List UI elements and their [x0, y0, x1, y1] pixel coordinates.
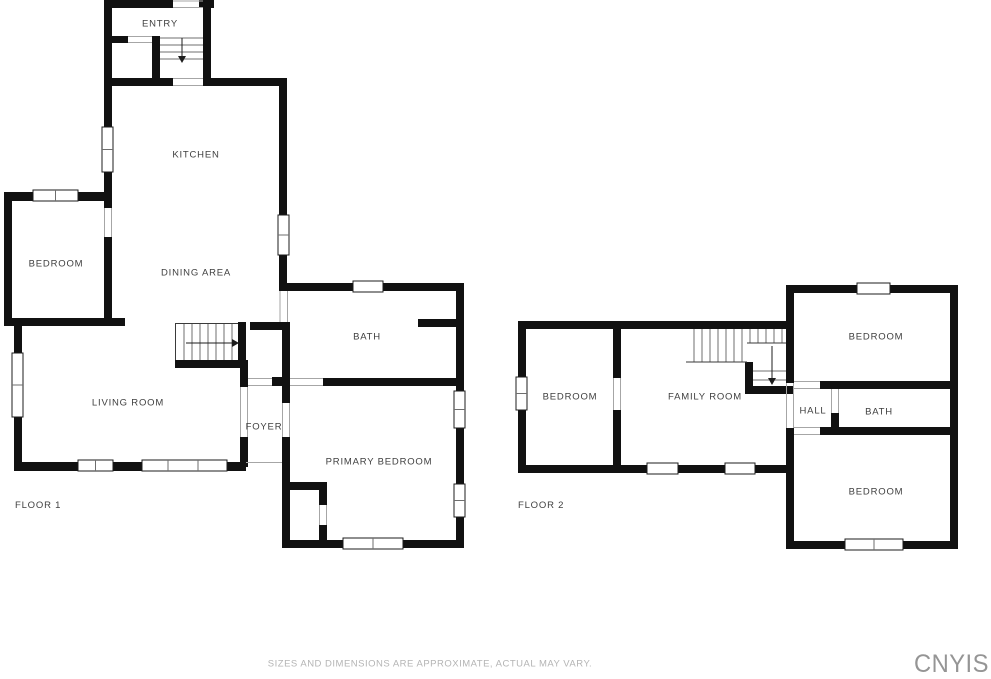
room-label-bath-f2: BATH: [865, 407, 893, 418]
room-label-family-room: FAMILY ROOM: [668, 392, 742, 403]
room-label-bedroom-f2-left: BEDROOM: [543, 392, 598, 403]
room-label-entry: ENTRY: [142, 19, 178, 30]
room-label-bath-f1: BATH: [353, 332, 381, 343]
floor1-entry-stairs: [160, 38, 203, 63]
room-label-bedroom-f2-bottom: BEDROOM: [849, 487, 904, 498]
floor1-main-stairs: [175, 323, 239, 360]
floor1-label: FLOOR 1: [15, 500, 61, 511]
floorplan-canvas: ENTRY KITCHEN BEDROOM DINING AREA BATH L…: [0, 0, 991, 679]
room-label-foyer: FOYER: [246, 422, 283, 433]
room-label-dining-area: DINING AREA: [161, 268, 231, 279]
room-label-kitchen: KITCHEN: [172, 150, 219, 161]
room-label-bedroom-f2-top: BEDROOM: [849, 332, 904, 343]
room-label-living-room: LIVING ROOM: [92, 398, 164, 409]
floor2-stairs: [686, 329, 786, 385]
floor2-label: FLOOR 2: [518, 500, 564, 511]
floorplan-drawing: [0, 0, 991, 679]
disclaimer-text: SIZES AND DIMENSIONS ARE APPROXIMATE, AC…: [268, 659, 592, 670]
watermark-logo: CNYIS: [914, 650, 989, 679]
room-label-hall: HALL: [800, 406, 827, 417]
room-label-primary-bedroom: PRIMARY BEDROOM: [326, 457, 433, 468]
room-label-bedroom-f1: BEDROOM: [29, 259, 84, 270]
